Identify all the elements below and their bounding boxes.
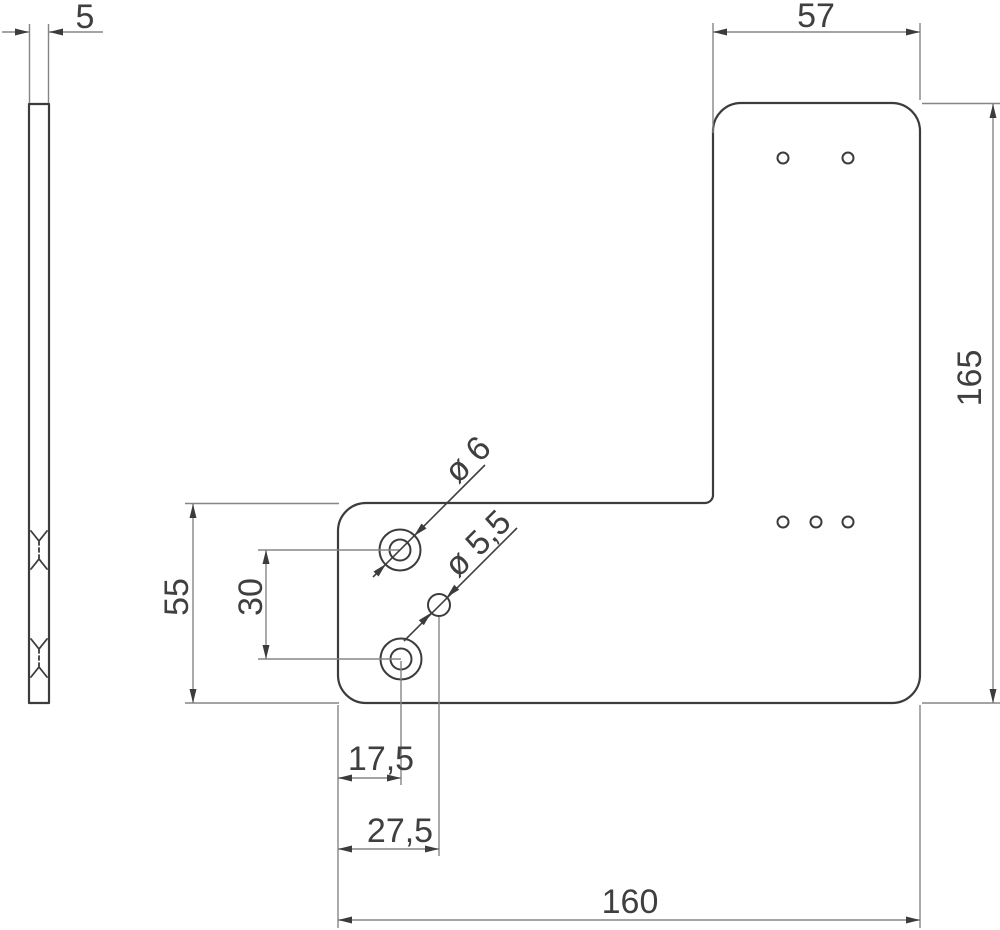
leader-hole-dia-6-label: ø 6 [437, 429, 499, 491]
front-view [338, 103, 920, 703]
dim-hole-spacing-lines [258, 550, 401, 659]
arrowhead [190, 504, 197, 518]
arrowhead [906, 29, 920, 36]
hole-top-right [843, 153, 854, 164]
technical-drawing-canvas: 5 57 165 [0, 0, 1000, 930]
arrowhead [263, 645, 270, 659]
plate-outline [338, 103, 920, 703]
dim-left-height-label: 55 [158, 578, 196, 616]
arrowhead [906, 917, 920, 924]
dim-hole-spacing-label: 30 [232, 578, 270, 616]
dim-overall-width-label: 160 [602, 883, 659, 921]
dim-top-width-label: 57 [797, 0, 835, 35]
arrowhead [990, 689, 997, 703]
technical-drawing-page: 5 57 165 [0, 0, 1000, 930]
dim-hole-spacing: 30 [232, 550, 401, 659]
dim-thickness-label: 5 [76, 0, 95, 36]
arrowhead [990, 104, 997, 118]
arrowhead [49, 29, 63, 36]
dim-hole-offset-17-5-lines [338, 661, 401, 928]
dim-overall-height: 165 [922, 104, 1000, 704]
leader-hole-dia-5-5: ø 5,5 [404, 503, 519, 641]
hole-mid-1 [778, 517, 789, 528]
side-view-plate-outline [29, 104, 49, 703]
hole-mid-3 [843, 517, 854, 528]
side-view [29, 104, 49, 703]
hole-mid-2 [811, 517, 822, 528]
arrowhead [15, 29, 29, 36]
dim-hole-offset-27-5: 27,5 [338, 617, 439, 856]
dim-thickness: 5 [2, 0, 103, 103]
hole-top-left [778, 153, 789, 164]
leader-hole-dia-5-5-label: ø 5,5 [437, 503, 519, 585]
hidden-hole-mark-upper [31, 531, 47, 569]
dim-hole-offset-17-5-label: 17,5 [348, 740, 414, 778]
dim-hole-offset-27-5-label: 27,5 [367, 812, 433, 850]
arrowhead [338, 917, 352, 924]
arrowhead [338, 846, 352, 853]
arrowhead [713, 29, 727, 36]
arrowhead [263, 550, 270, 564]
dim-overall-height-label: 165 [951, 350, 989, 407]
hidden-hole-mark-lower [31, 639, 47, 677]
arrowhead [190, 689, 197, 703]
dim-top-width: 57 [713, 0, 920, 133]
dim-hole-offset-17-5: 17,5 [338, 661, 414, 928]
dim-top-width-lines [713, 23, 920, 133]
